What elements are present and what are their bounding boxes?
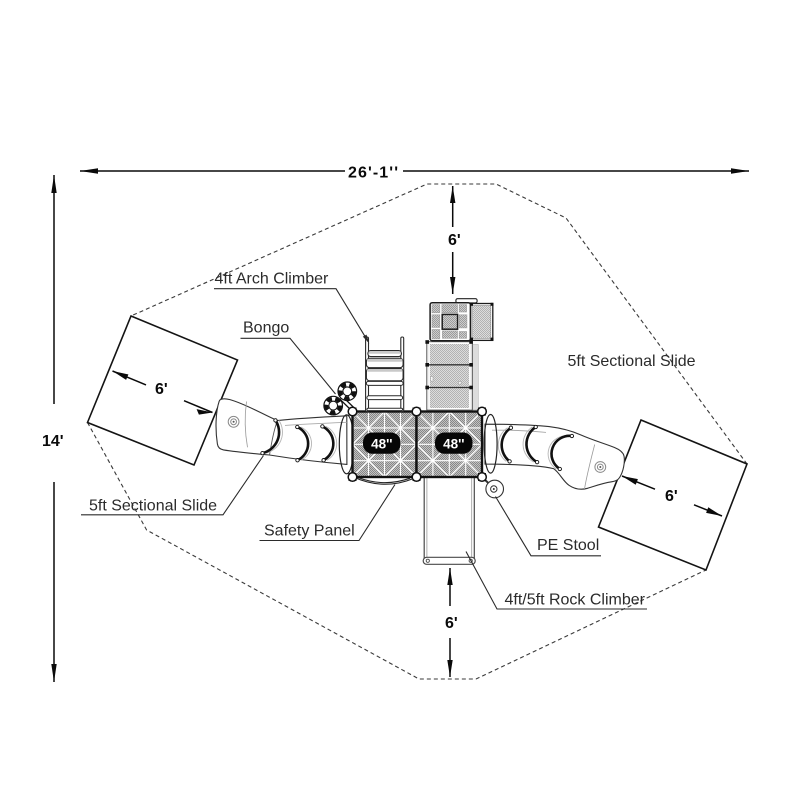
svg-text:14': 14' xyxy=(42,433,64,450)
svg-text:4ft Arch Climber: 4ft Arch Climber xyxy=(215,271,329,288)
svg-text:48'': 48'' xyxy=(371,436,392,451)
svg-text:6': 6' xyxy=(445,615,458,632)
svg-text:48'': 48'' xyxy=(443,436,464,451)
svg-text:6': 6' xyxy=(155,381,168,398)
svg-text:26'-1'': 26'-1'' xyxy=(348,165,398,182)
svg-text:5ft Sectional Slide: 5ft Sectional Slide xyxy=(568,353,696,370)
svg-text:6': 6' xyxy=(665,488,678,505)
svg-text:Bongo: Bongo xyxy=(243,320,289,337)
svg-text:Safety Panel: Safety Panel xyxy=(264,523,355,540)
svg-text:5ft Sectional Slide: 5ft Sectional Slide xyxy=(89,498,217,515)
svg-text:4ft/5ft Rock Climber: 4ft/5ft Rock Climber xyxy=(505,592,646,609)
svg-text:PE Stool: PE Stool xyxy=(537,537,599,554)
svg-text:6': 6' xyxy=(448,232,461,249)
